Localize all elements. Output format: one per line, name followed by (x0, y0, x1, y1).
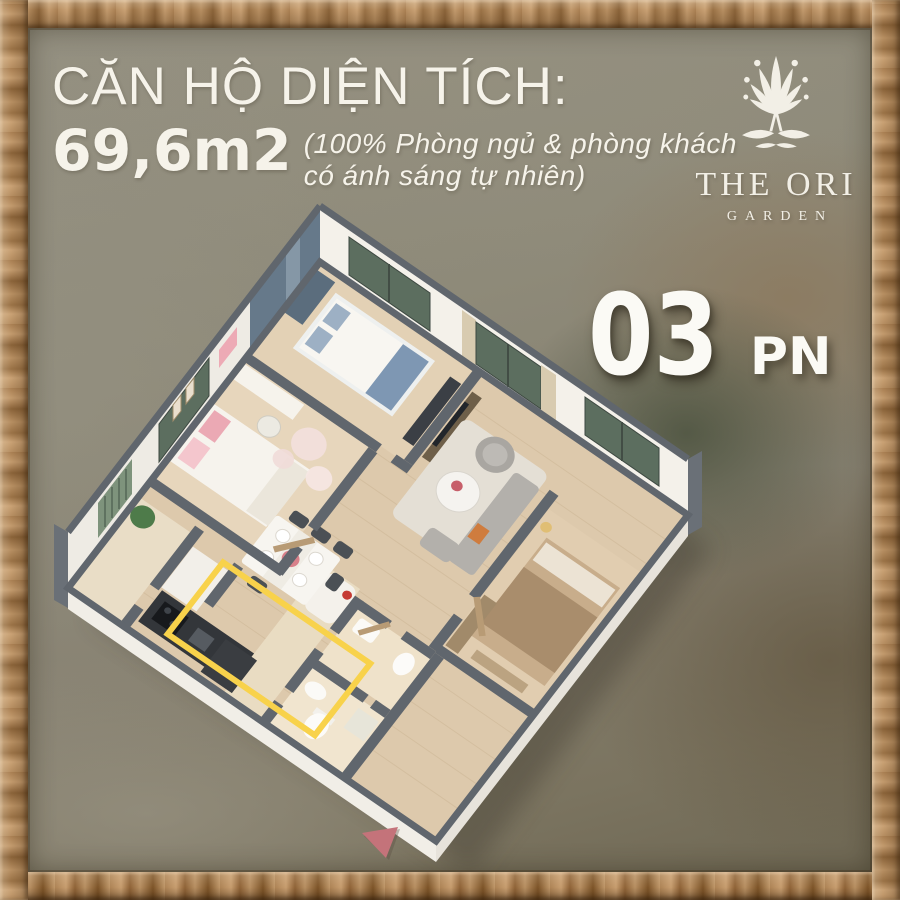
open-door (358, 621, 391, 635)
wood-frame-left (0, 0, 28, 900)
bathroom-1-area (317, 607, 431, 710)
open-door (273, 537, 315, 553)
balcony-area (68, 497, 190, 624)
hallway-area (223, 564, 361, 720)
badge-unit: PN (750, 331, 832, 383)
hall-cabinet (302, 571, 359, 627)
wood-frame-bottom (0, 872, 900, 900)
curtain (541, 365, 556, 424)
front-right-wall (436, 515, 688, 862)
bedroom-1-window (349, 237, 430, 331)
poster-background: CĂN HỘ DIỆN TÍCH: 69,6m2 (100% Phòng ngủ… (28, 28, 872, 872)
area-note-line-1: (100% Phòng ngủ & phòng khách (304, 128, 737, 160)
logo-subtitle: GARDEN (676, 209, 876, 225)
bedroom-1-accent-wall (250, 206, 320, 353)
area-note: (100% Phòng ngủ & phòng khách có ánh sán… (304, 123, 737, 192)
living-room-furniture (377, 392, 566, 580)
balcony-plant (125, 501, 160, 533)
bedroom-2-area (152, 360, 369, 565)
front-left-wall (68, 588, 436, 862)
poster: CĂN HỘ DIỆN TÍCH: 69,6m2 (100% Phòng ngủ… (0, 0, 900, 900)
wood-frame-top (0, 0, 900, 28)
pink-shelf (219, 327, 237, 368)
badge-number: 03 (588, 280, 719, 392)
marker-triangle-icon (362, 827, 398, 858)
balcony-louvers (98, 459, 132, 538)
picture-frame (186, 378, 194, 404)
wood-frame-right (872, 0, 900, 900)
bedroom-2-furniture (170, 364, 362, 541)
open-door (473, 597, 485, 637)
master-bedroom-area (442, 509, 643, 712)
apartment-title: CĂN HỘ DIỆN TÍCH: (52, 56, 737, 117)
bedroom-count-badge: 03 PN (588, 280, 832, 392)
apartment-area: 69,6m2 (52, 123, 292, 180)
living-room-window (476, 322, 541, 409)
bedroom-2-window (159, 358, 209, 462)
ori-garden-logo: THE ORI GARDEN (676, 46, 876, 225)
bedroom-1-furniture (261, 270, 468, 446)
back-left-wall (54, 206, 320, 608)
picture-frame (173, 395, 181, 421)
header: CĂN HỘ DIỆN TÍCH: 69,6m2 (100% Phòng ngủ… (52, 56, 737, 192)
bathroom-fixtures (280, 616, 426, 764)
logo-emblem-icon (710, 46, 842, 164)
kitchen-highlight-box (168, 562, 371, 735)
master-bedroom-window (585, 397, 659, 486)
master-bedroom-furniture (445, 519, 628, 704)
bedroom-1-area (248, 262, 474, 461)
area-note-line-2: có ánh sáng tự nhiên) (304, 160, 737, 192)
marker-shadow (364, 829, 400, 860)
curtain (462, 310, 476, 369)
logo-title: THE ORI (676, 166, 876, 204)
kitchen-dining-furniture (133, 477, 364, 705)
bathroom-2-area (267, 666, 386, 775)
